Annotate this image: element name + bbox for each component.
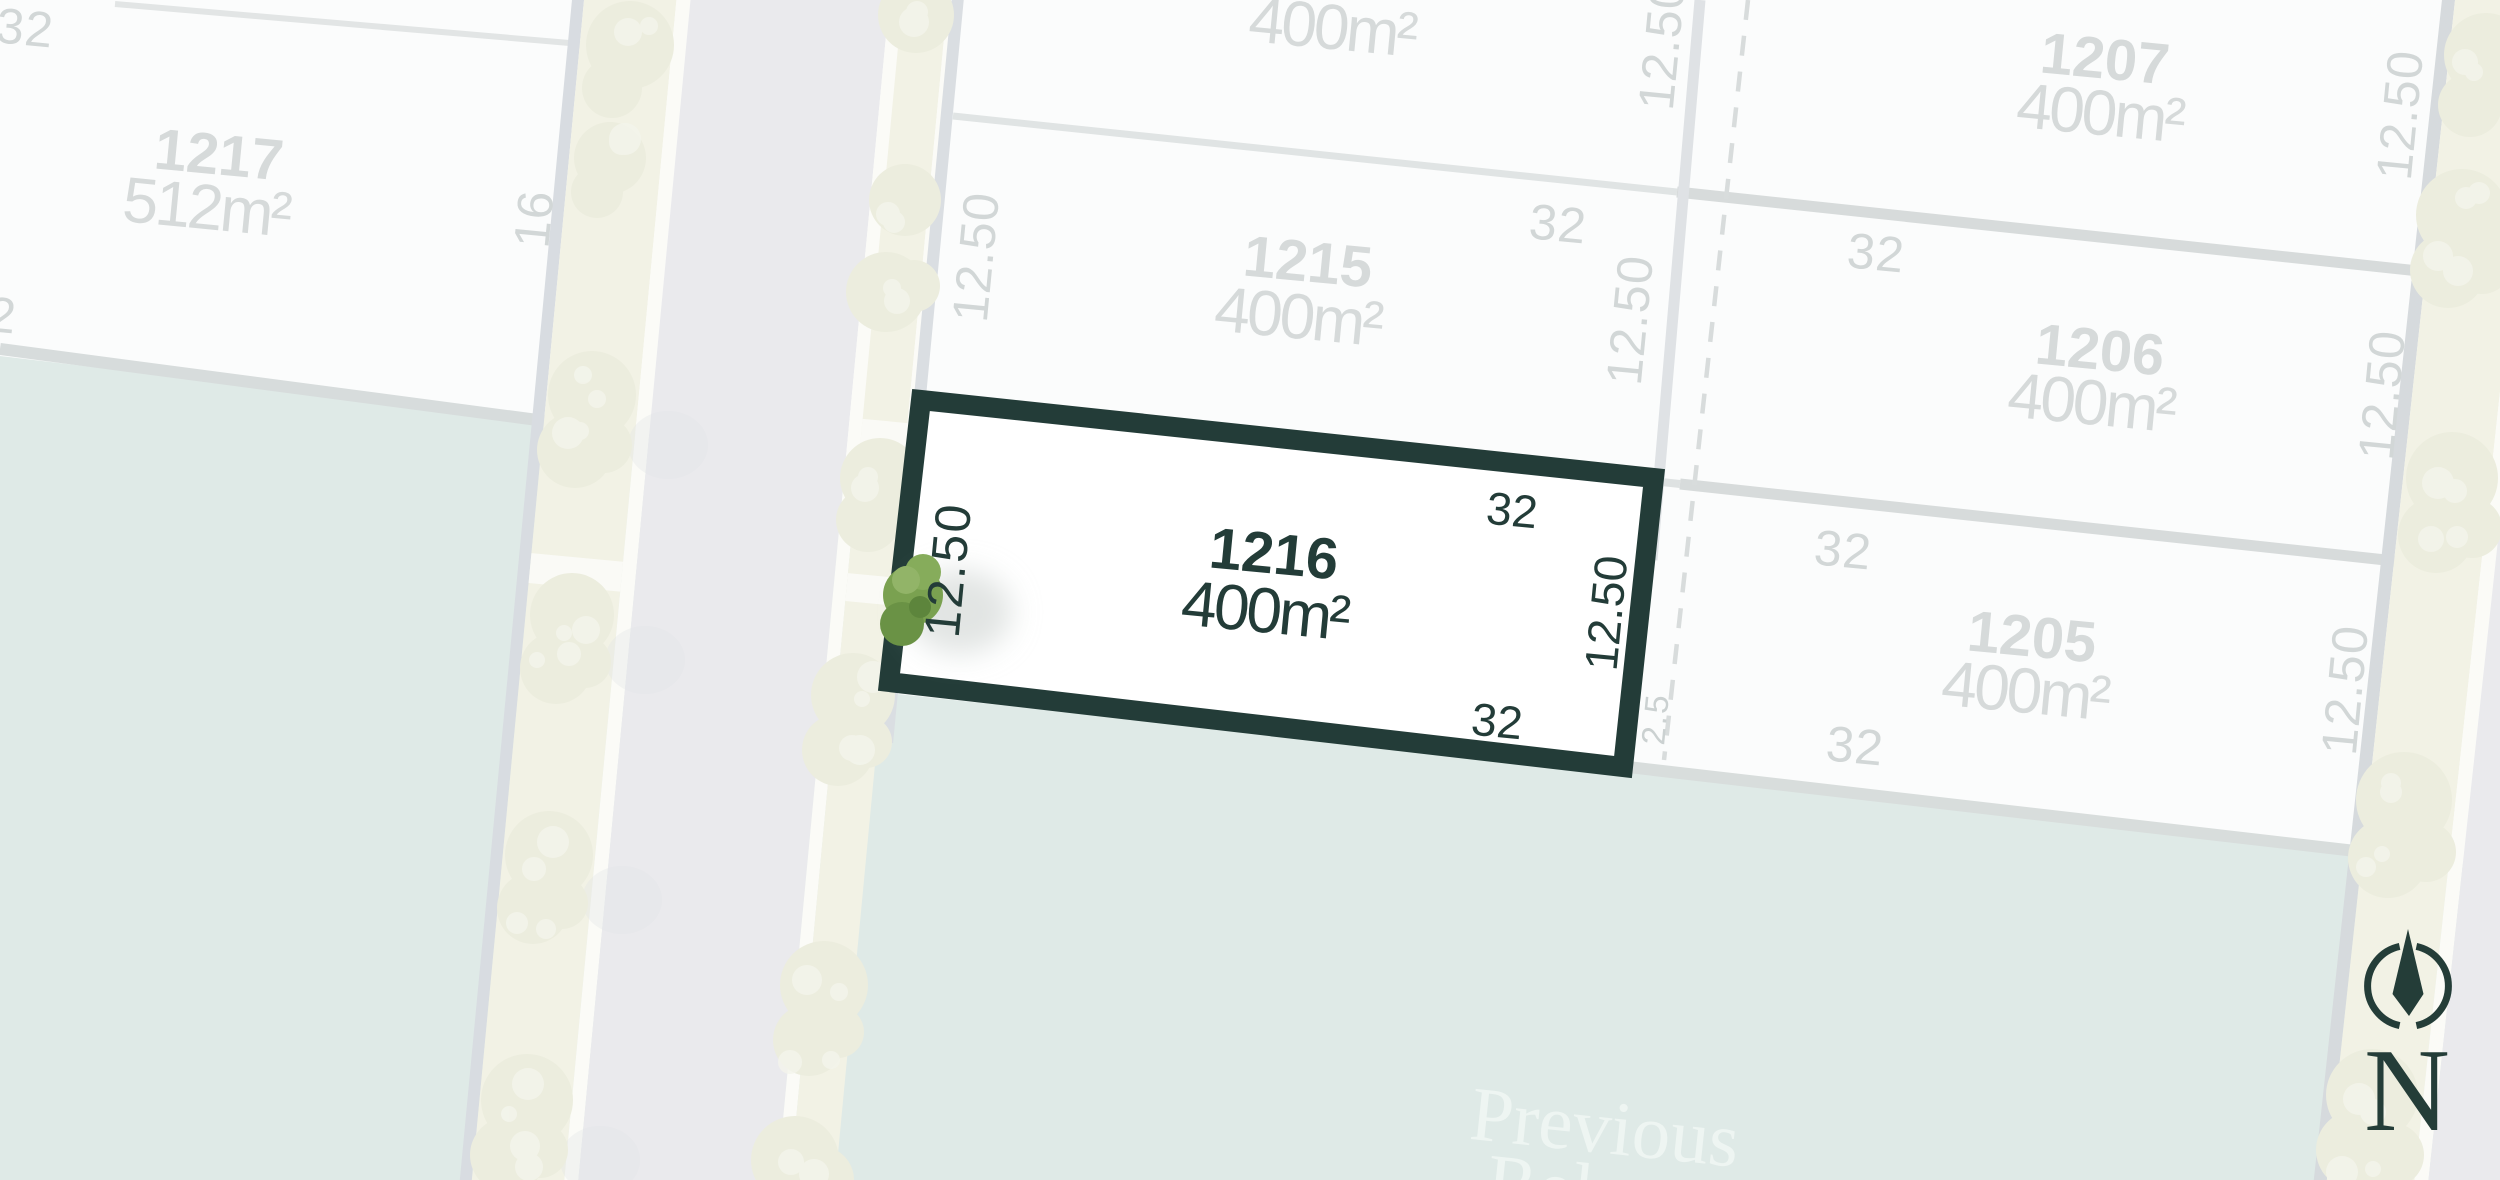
svg-text:N: N [2364,1024,2450,1156]
svg-text:32: 32 [1484,482,1540,539]
svg-text:32: 32 [1845,222,1908,283]
svg-text:32: 32 [1469,693,1525,750]
svg-text:12.50: 12.50 [1575,553,1638,673]
svg-text:16: 16 [503,188,564,251]
svg-text:2.5: 2.5 [1634,691,1676,746]
svg-text:32: 32 [1824,715,1887,776]
svg-text:32: 32 [0,0,56,59]
svg-text:32: 32 [1812,519,1875,580]
svg-text:32: 32 [1527,193,1590,254]
